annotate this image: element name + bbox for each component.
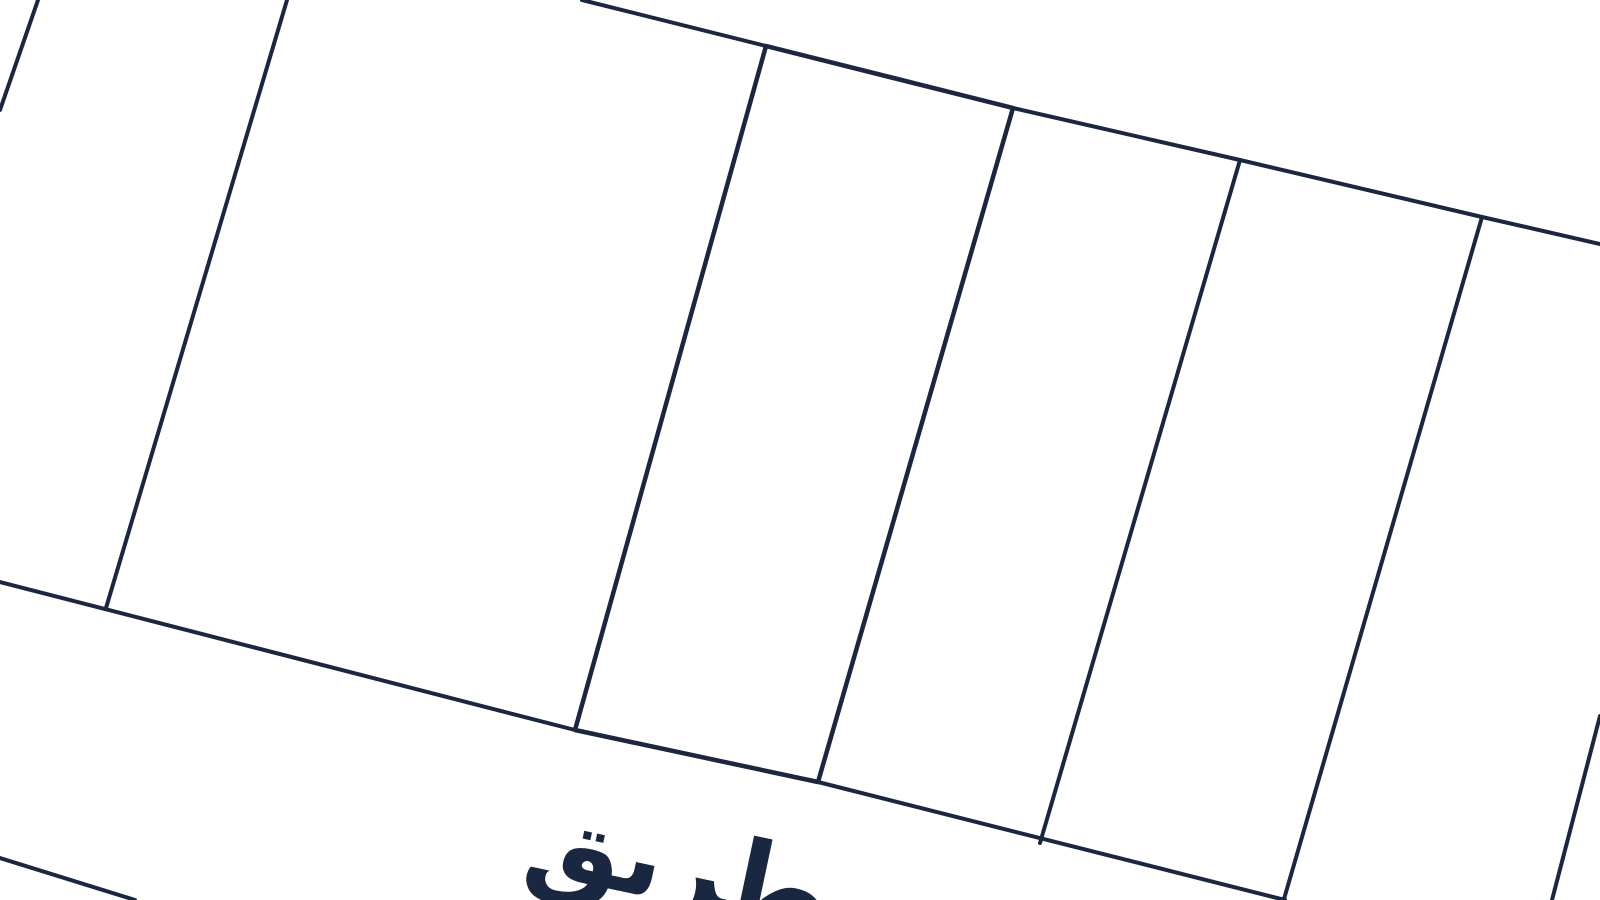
road-lower-edge-line <box>0 858 135 900</box>
plot-area-unit: SQM <box>712 414 861 482</box>
plot-divider <box>0 0 38 110</box>
plot-divider <box>1552 716 1600 900</box>
plot-map: 14.0 14.0 40.3 40.3 564.7 SQM طريق <box>0 0 1600 900</box>
plot-right-length-label: 40.3 <box>887 232 977 367</box>
plot-bottom-width-label: 14.0 <box>627 688 761 774</box>
map-canvas: 14.0 14.0 40.3 40.3 564.7 SQM طريق <box>0 0 1600 900</box>
plot-divider <box>1040 160 1240 843</box>
plot-divider <box>1284 217 1482 899</box>
road-name-label: طريق <box>516 773 842 900</box>
plot-area-value: 564.7 <box>694 347 877 415</box>
plot-top-width-label: 14.0 <box>821 60 955 145</box>
plot-left-length-label: 40.3 <box>699 183 789 318</box>
plot-divider <box>106 0 287 608</box>
